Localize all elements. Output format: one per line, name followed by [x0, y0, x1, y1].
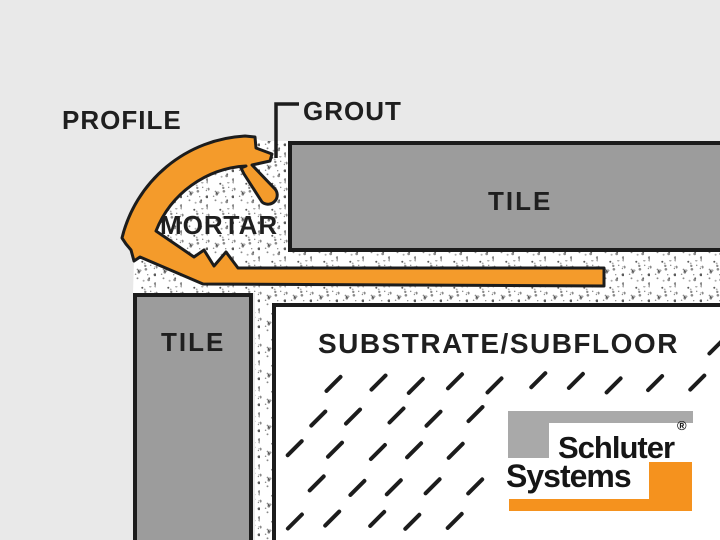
profile-label: PROFILE — [62, 107, 182, 133]
logo-text-systems: Systems — [506, 460, 631, 492]
grout-label: GROUT — [303, 98, 402, 124]
schluter-logo: Schluter ® Systems — [505, 408, 705, 514]
registered-trademark-symbol: ® — [677, 418, 687, 433]
substrate-subfloor-label: SUBSTRATE/SUBFLOOR — [318, 330, 679, 358]
mortar-label: MORTAR — [160, 212, 278, 238]
schluter-installation-diagram: PROFILE GROUT MORTAR TILE TILE SUBSTRATE… — [0, 0, 720, 540]
tile-top-label: TILE — [488, 188, 552, 214]
tile-left-label: TILE — [161, 329, 225, 355]
